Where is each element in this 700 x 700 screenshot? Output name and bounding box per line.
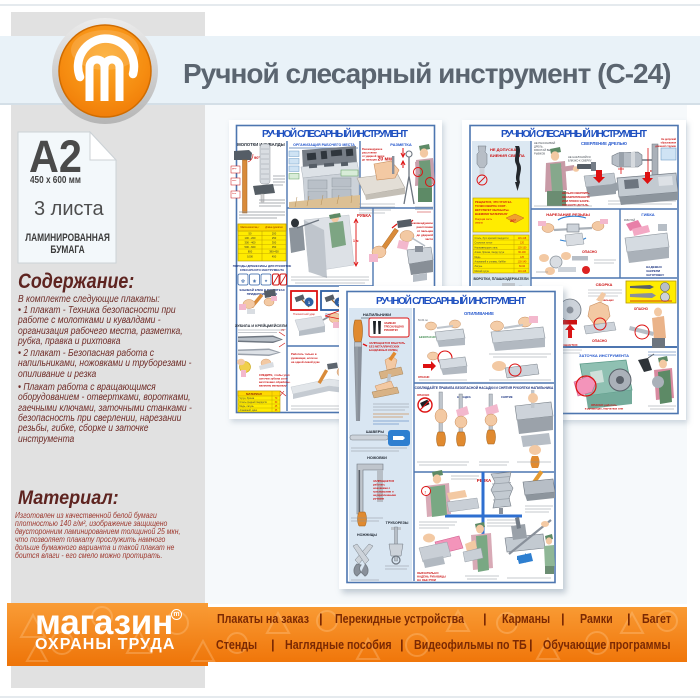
svg-text:ОПИЛИВАНИЕ: ОПИЛИВАНИЕ	[464, 311, 494, 316]
svg-text:70°: 70°	[281, 328, 286, 332]
svg-text:Медь, латунь: Медь, латунь	[240, 406, 255, 408]
svg-text:!: !	[425, 490, 426, 495]
svg-text:120: 120	[520, 242, 525, 245]
svg-text:длинной стружки: длинной стружки	[655, 145, 676, 148]
svg-text:Плоскостной удар: Плоскостной удар	[293, 312, 315, 316]
svg-text:РЫВКОВ: РЫВКОВ	[534, 152, 545, 156]
svg-text:Рекомендуемое: Рекомендуемое	[362, 147, 383, 151]
svg-text:болт: болт	[232, 193, 236, 195]
svg-text:НЕ РАСКАЧИВАЙ: НЕ РАСКАЧИВАЙ	[534, 141, 555, 145]
svg-text:ВАЕМОМУ МАТЕРИАЛУ: ВАЕМОМУ МАТЕРИАЛУ	[475, 212, 508, 216]
svg-text:116-118: 116-118	[518, 237, 527, 240]
svg-text:ЗАПРЕЩАЕТСЯ РАБОТАТЬ: ЗАПРЕЩАЕТСЯ РАБОТАТЬ	[369, 341, 405, 345]
svg-text:ТРЕСНУВШУЮ: ТРЕСНУВШУЮ	[384, 325, 404, 329]
svg-text:РУЧНОЙ СЛЕСАРНЫЙ ИНСТРУМЕНТ: РУЧНОЙ СЛЕСАРНЫЙ ИНСТРУМЕНТ	[376, 294, 526, 307]
svg-text:БАНДАЖНЫХ КОЛЕЦ: БАНДАЖНЫХ КОЛЕЦ	[369, 348, 397, 352]
svg-text:ГИБКА: ГИБКА	[641, 212, 654, 217]
svg-text:Длина рукоятки: Длина рукоятки	[265, 226, 283, 229]
svg-text:✿: ✿	[241, 279, 245, 284]
svg-text:СЛЕСАРНОГО ИНСТРУМЕНТА: СЛЕСАРНОГО ИНСТРУМЕНТА	[240, 268, 285, 272]
svg-text:Чугун, бронза: Чугун, бронза	[240, 398, 255, 400]
svg-text:НЕ НАКЛОНЯЙСЯ: НЕ НАКЛОНЯЙСЯ	[568, 155, 591, 159]
svg-text:ОПАСНО: ОПАСНО	[634, 307, 649, 311]
svg-text:Масса молотка, г: Масса молотка, г	[240, 226, 259, 229]
svg-text:❀: ❀	[253, 279, 257, 284]
svg-text:БЛИЗКО К СВЕРЛУ: БЛИЗКО К СВЕРЛУ	[568, 159, 592, 163]
svg-text:Мягкий чугун: Мягкий чугун	[475, 270, 490, 273]
svg-text:380-450: 380-450	[269, 250, 279, 254]
svg-text:РУЧНОЙ СЛЕСАРНЫЙ ИНСТРУМЕНТ: РУЧНОЙ СЛЕСАРНЫЙ ИНСТРУМЕНТ	[501, 127, 647, 140]
svg-text:РАБОТАЙ БЕЗ: РАБОТАЙ БЕЗ	[534, 148, 552, 152]
svg-text:РУБКА: РУБКА	[357, 213, 371, 218]
svg-text:ручками: ручками	[373, 498, 384, 501]
svg-text:20°: 20°	[510, 218, 516, 223]
svg-text:РУЧНОЙ СЛЕСАРНЫЙ ИНСТРУМЕНТ: РУЧНОЙ СЛЕСАРНЫЙ ИНСТРУМЕНТ	[262, 127, 408, 140]
svg-text:РУКОЯТКУ: РУКОЯТКУ	[384, 328, 398, 332]
svg-text:300 - 400: 300 - 400	[245, 241, 257, 245]
svg-text:клин: клин	[232, 180, 236, 182]
svg-text:СБОРКА: СБОРКА	[596, 282, 613, 287]
svg-text:350: 350	[272, 245, 277, 249]
svg-text:100 - 200: 100 - 200	[245, 236, 257, 240]
svg-text:Алюм, бронза, тверд чугун: Алюм, бронза, тверд чугун	[475, 251, 505, 254]
svg-text:Нержавеющая сталь: Нержавеющая сталь	[475, 246, 499, 249]
svg-text:1000: 1000	[247, 255, 253, 259]
svg-text:130-140: 130-140	[518, 261, 527, 264]
svg-text:НЕ ДОПУСКАЙ: НЕ ДОПУСКАЙ	[490, 147, 519, 152]
svg-text:Медь: Медь	[475, 256, 482, 259]
svg-text:работать: работать	[373, 483, 385, 487]
svg-text:250: 250	[272, 236, 277, 240]
svg-text:ОПАСНО: ОПАСНО	[592, 339, 607, 343]
svg-text:ШАВЕРЫ: ШАВЕРЫ	[366, 430, 384, 434]
svg-text:125: 125	[520, 256, 525, 259]
svg-text:ПЛЕННУЮ ДЕТАЛЬ: ПЛЕННУЮ ДЕТАЛЬ	[562, 203, 589, 207]
svg-text:СОБЛЮДАЙТЕ ПРАВИЛА БЕЗОПАСНОЙ: СОБЛЮДАЙТЕ ПРАВИЛА БЕЗОПАСНОЙ НАСАДКИ И …	[415, 386, 554, 390]
svg-text:ОПАСНО: ОПАСНО	[417, 393, 430, 397]
svg-text:на одной левой руке: на одной левой руке	[291, 360, 320, 364]
svg-text:МАТЕРИАЛ: МАТЕРИАЛ	[246, 392, 262, 396]
svg-text:ОПАСНО: ОПАСНО	[418, 375, 429, 379]
svg-text:450: 450	[272, 255, 277, 259]
svg-text:ЗУБИЛА И КРЕЙЦМЕЙСЕЛИ: ЗУБИЛА И КРЕЙЦМЕЙСЕЛИ	[235, 324, 288, 328]
svg-text:РАЗМЕТКА: РАЗМЕТКА	[390, 142, 412, 147]
svg-text:800: 800	[248, 250, 253, 254]
svg-text:Алюминий, цинк: Алюминий, цинк	[240, 409, 258, 412]
svg-text:90°: 90°	[254, 155, 260, 160]
svg-text:Сталь, бугл краткой твердости: Сталь, бугл краткой твердости	[475, 237, 510, 240]
svg-text:ВОРОТКИ, ПЛАШКОДЕРЖАТЕЛИ: ВОРОТКИ, ПЛАШКОДЕРЖАТЕЛИ	[473, 277, 529, 281]
svg-text:БЕЗ МЕТАЛЛИЧЕСКИХ: БЕЗ МЕТАЛЛИЧЕСКИХ	[369, 345, 400, 349]
svg-text:СВЕРЛЕНИЕ ДРЕЛЬЮ: СВЕРЛЕНИЕ ДРЕЛЬЮ	[581, 141, 628, 146]
svg-text:СНЯТИЕ: СНЯТИЕ	[501, 395, 513, 399]
svg-text:✦: ✦	[264, 279, 268, 284]
svg-text:90-100: 90-100	[518, 251, 526, 254]
svg-text:ваемому материалу: ваемому материалу	[259, 384, 287, 388]
svg-text:Сталь средней твердости: Сталь средней твердости	[240, 401, 268, 404]
svg-text:ЗАМЕНИ: ЗАМЕНИ	[384, 321, 396, 325]
svg-text:300: 300	[272, 241, 277, 245]
svg-text:Алюминий и сплавы, баббит: Алюминий и сплавы, баббит	[475, 261, 508, 264]
svg-text:50-60 см: 50-60 см	[418, 319, 428, 322]
svg-text:НА ОБЕ РУКИ: НА ОБЕ РУКИ	[417, 578, 436, 582]
svg-text:ЗАПРЕЩАЕТСЯ: ЗАПРЕЩАЕТСЯ	[373, 479, 394, 483]
svg-text:60-90: 60-90	[519, 265, 526, 268]
svg-text:ДРЕЛЬ,: ДРЕЛЬ,	[534, 145, 544, 149]
svg-text:ТРУБОРЕЗЫ: ТРУБОРЕЗЫ	[386, 521, 409, 525]
svg-text:части: части	[425, 237, 433, 241]
svg-text:ЗАГОТОВКУ: ЗАГОТОВКУ	[646, 273, 664, 277]
svg-text:НАПИЛЬНИКИ: НАПИЛЬНИКИ	[363, 312, 391, 317]
svg-text:ОРГАНИЗАЦИЯ РАБОЧЕГО МЕСТА: ОРГАНИЗАЦИЯ РАБОЧЕГО МЕСТА	[293, 143, 355, 147]
svg-text:БЕЗОПАСНО: БЕЗОПАСНО	[419, 335, 436, 339]
svg-text:сверла: сверла	[475, 222, 483, 225]
svg-text:Латунь: Латунь	[475, 265, 483, 268]
svg-text:500 - 600: 500 - 600	[245, 245, 257, 249]
svg-text:110-116: 110-116	[518, 270, 527, 273]
svg-text:120-130: 120-130	[518, 246, 527, 249]
svg-text:200: 200	[272, 232, 277, 236]
svg-text:Стальное литье: Стальное литье	[475, 242, 493, 245]
svg-text:в рукавицах, перчатках или: в рукавицах, перчатках или	[585, 407, 624, 411]
svg-text:НОЖНИЦЫ: НОЖНИЦЫ	[357, 533, 377, 537]
svg-text:ЗАТОЧКА ИНСТРУМЕНТА: ЗАТОЧКА ИНСТРУМЕНТА	[579, 353, 629, 358]
svg-text:ОПАСНО: ОПАСНО	[582, 250, 597, 254]
svg-text:НОЖОВКИ: НОЖОВКИ	[367, 456, 387, 460]
svg-text:1 м: 1 м	[353, 239, 359, 243]
